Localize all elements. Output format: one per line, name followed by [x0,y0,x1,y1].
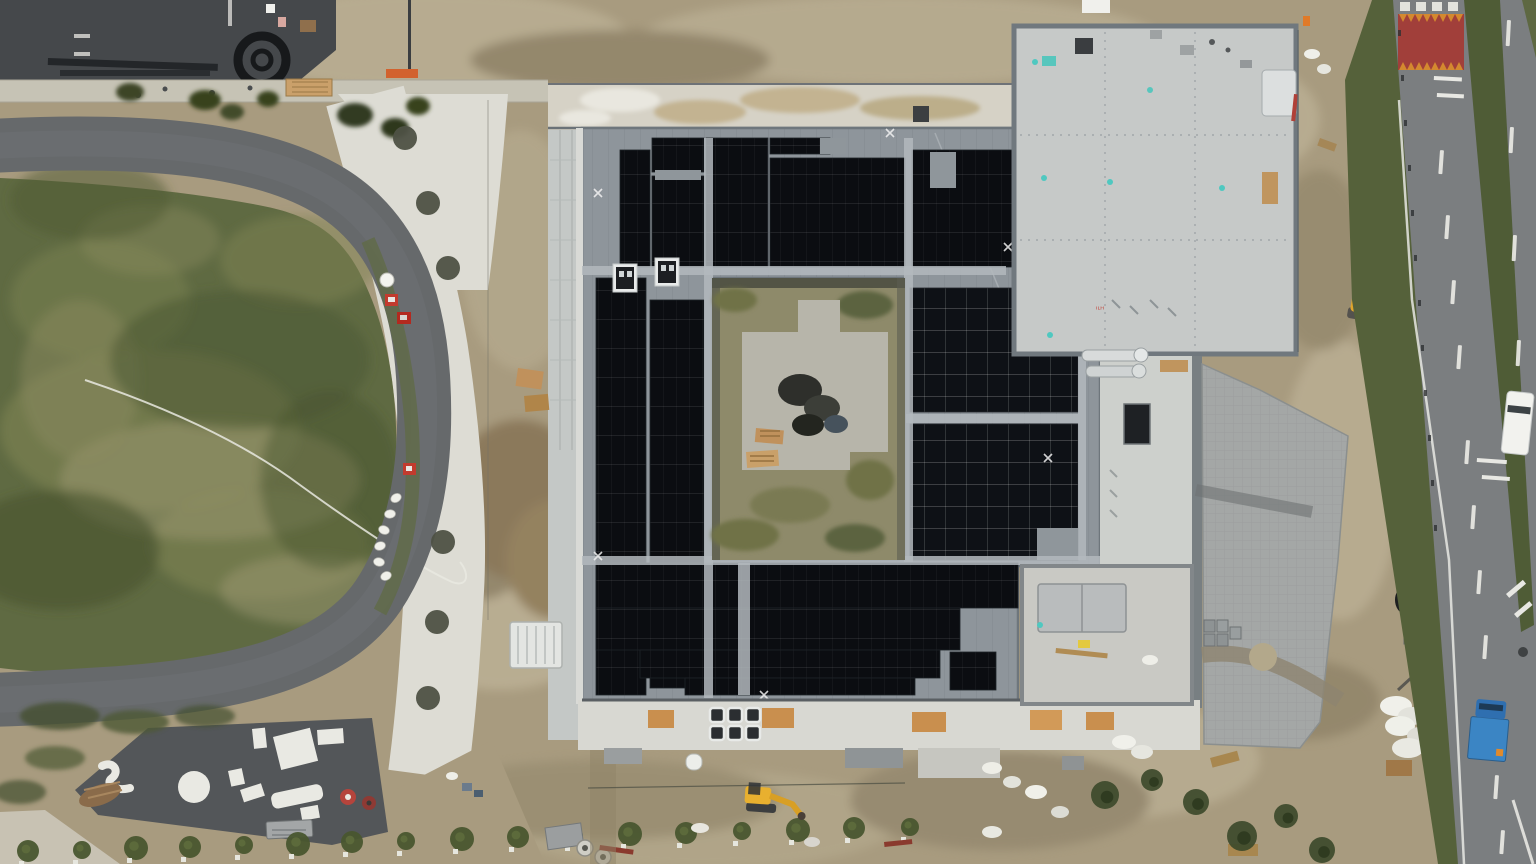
tree-stake [127,858,132,863]
white-van [1501,391,1534,455]
person-white [266,4,275,13]
array-gap [655,170,701,180]
roof-hatch [1075,38,1093,54]
pole [408,0,411,70]
manhole [1518,647,1528,657]
array-gap [1037,528,1078,560]
tree-pit [431,530,455,554]
red-traffic-zone [1398,14,1464,70]
window-crate [762,708,794,728]
fence-post [1411,210,1414,216]
white-sack [1112,735,1136,749]
solar-panel-array [685,678,915,695]
solar-panel-array [770,158,905,267]
tree-pit [436,256,460,280]
tree-crown [680,827,689,836]
tree-crown [184,841,193,850]
yellow-item [1078,640,1090,648]
tree-stake [733,841,738,846]
flat-roof-southeast [1022,566,1192,704]
roof-vent [728,708,742,722]
parking-line [74,34,90,38]
person-pink [278,17,286,27]
wood-pallet [515,368,543,389]
tree-crown [904,821,911,828]
parking-line [74,52,90,56]
roof-walkway [906,414,1078,423]
wood-pallet [524,394,549,412]
fence-post [1408,165,1411,171]
scene-canvas: ᴵᴸᴴ [0,0,1536,864]
tree-pit [425,610,449,634]
fence-post [1401,75,1404,81]
tree-pit [416,686,440,710]
flat-roof-northeast: ᴵᴸᴴ [1014,26,1296,354]
solar-panel-array [640,650,940,678]
aerial-construction-site-photo: ᴵᴸᴴ [0,0,1536,864]
fence-post [1428,435,1431,441]
rooftop-unit [1262,70,1296,116]
fence-post [1421,345,1424,351]
tree-crown [291,837,301,847]
teal-bin [1042,56,1056,66]
exterior-stair [510,622,562,668]
roof-walkway [582,266,1006,275]
tree-shadow [1283,813,1294,824]
fence-post [1424,390,1427,396]
roof-vent [710,726,724,740]
tree-crown [791,823,801,833]
tree-crown [129,841,139,851]
tree-shadow [1101,791,1114,804]
tree-crown [346,836,355,845]
tree-stake [289,854,294,859]
traffic-cone [1303,16,1310,26]
window-crate [648,710,674,728]
tree-shadow [1192,798,1204,810]
tree-crown [400,835,407,842]
tree-crown [22,845,31,854]
entrance-stub [604,748,642,764]
solar-panel-array [620,150,650,267]
white-vehicle [1082,0,1110,13]
tree-pit [416,191,440,215]
tree-crown [238,839,245,846]
tree-stake [789,840,794,845]
entrance-stub [845,748,903,768]
tree-stake [343,852,348,857]
fence-post [1434,525,1437,531]
pipe-stack [60,70,210,76]
fence-post [1398,30,1401,36]
roof-hatch [913,106,929,122]
tree-crown [623,827,633,837]
solar-panel-array [652,176,704,267]
solar-panel-array [950,652,996,690]
parking-line [228,0,232,26]
school-building: ᴵᴸᴴ [510,26,1296,778]
roof-walkway [738,563,750,695]
solar-panel-array [706,138,768,267]
tree-stake [181,857,186,862]
window-crate [1030,710,1062,730]
west-parapet [576,128,583,704]
dirt-track [590,748,616,864]
orange-beam [386,69,418,78]
tree-stake [677,843,682,848]
window-crate [1086,712,1114,730]
roof-vent [746,708,760,722]
solar-panel-array [652,138,704,172]
roof-vent [710,708,724,722]
courtyard [711,278,905,560]
parking-lot [0,0,336,84]
solar-panel-array [596,563,1018,608]
tree-stake [509,847,514,852]
fence-post [1404,120,1407,126]
tree-stake [73,860,78,864]
fence-post [1431,480,1434,486]
array-gap [820,138,846,154]
tree-stake [235,855,240,860]
wood-planks [1262,172,1278,204]
painted-circle [178,771,210,803]
sand-patch [1249,643,1277,671]
red-zone-surface [1398,14,1464,70]
tree-crown [736,825,743,832]
tree-stake [397,851,402,856]
hvac-unit-dark [1124,404,1150,444]
white-sack [1131,745,1153,759]
fence-post [1414,255,1417,261]
pallet [1386,760,1412,776]
tree-shadow [1149,777,1159,787]
tree-crown [512,831,521,840]
white-umbrella [380,273,394,287]
array-gap [930,152,956,188]
roof-vent [746,726,760,740]
tree-pit [393,126,417,150]
red-roof-marking: ᴵᴸᴴ [1096,305,1104,314]
tree-stake [453,849,458,854]
tree-crown [76,844,83,851]
tree-shadow [1237,831,1251,845]
roof-walkway [904,138,913,562]
tree-shadow [1318,846,1330,858]
wood-planks [1160,360,1188,372]
roof-vent [728,726,742,740]
fence-post [1418,300,1421,306]
white-tank [686,754,702,770]
tree-stake [845,838,850,843]
window-crate [912,712,946,732]
solar-panel-array [596,608,960,650]
roof-walkway [704,138,713,698]
tree-crown [455,832,465,842]
crate [300,20,316,32]
wood-pallet [746,450,779,468]
tree-crown [848,822,857,831]
